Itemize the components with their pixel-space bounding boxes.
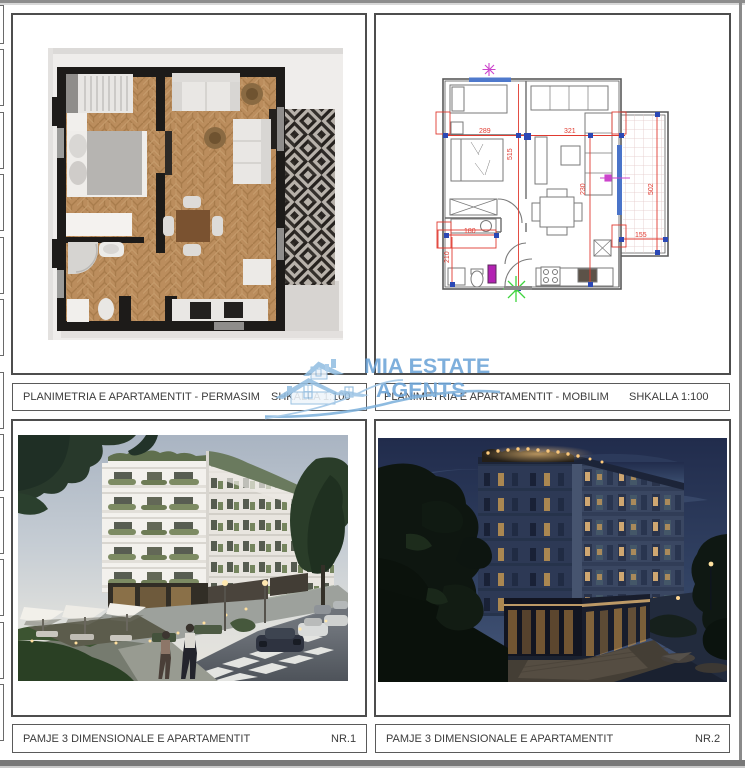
svg-text:210: 210 xyxy=(444,251,451,263)
svg-text:289: 289 xyxy=(479,128,491,135)
svg-text:180: 180 xyxy=(464,228,476,235)
svg-text:MIA ESTATE: MIA ESTATE xyxy=(364,354,490,378)
svg-text:502: 502 xyxy=(648,183,655,195)
svg-text:321: 321 xyxy=(564,128,576,135)
svg-text:230: 230 xyxy=(580,183,587,195)
svg-text:155: 155 xyxy=(635,232,647,239)
svg-text:515: 515 xyxy=(507,148,514,160)
